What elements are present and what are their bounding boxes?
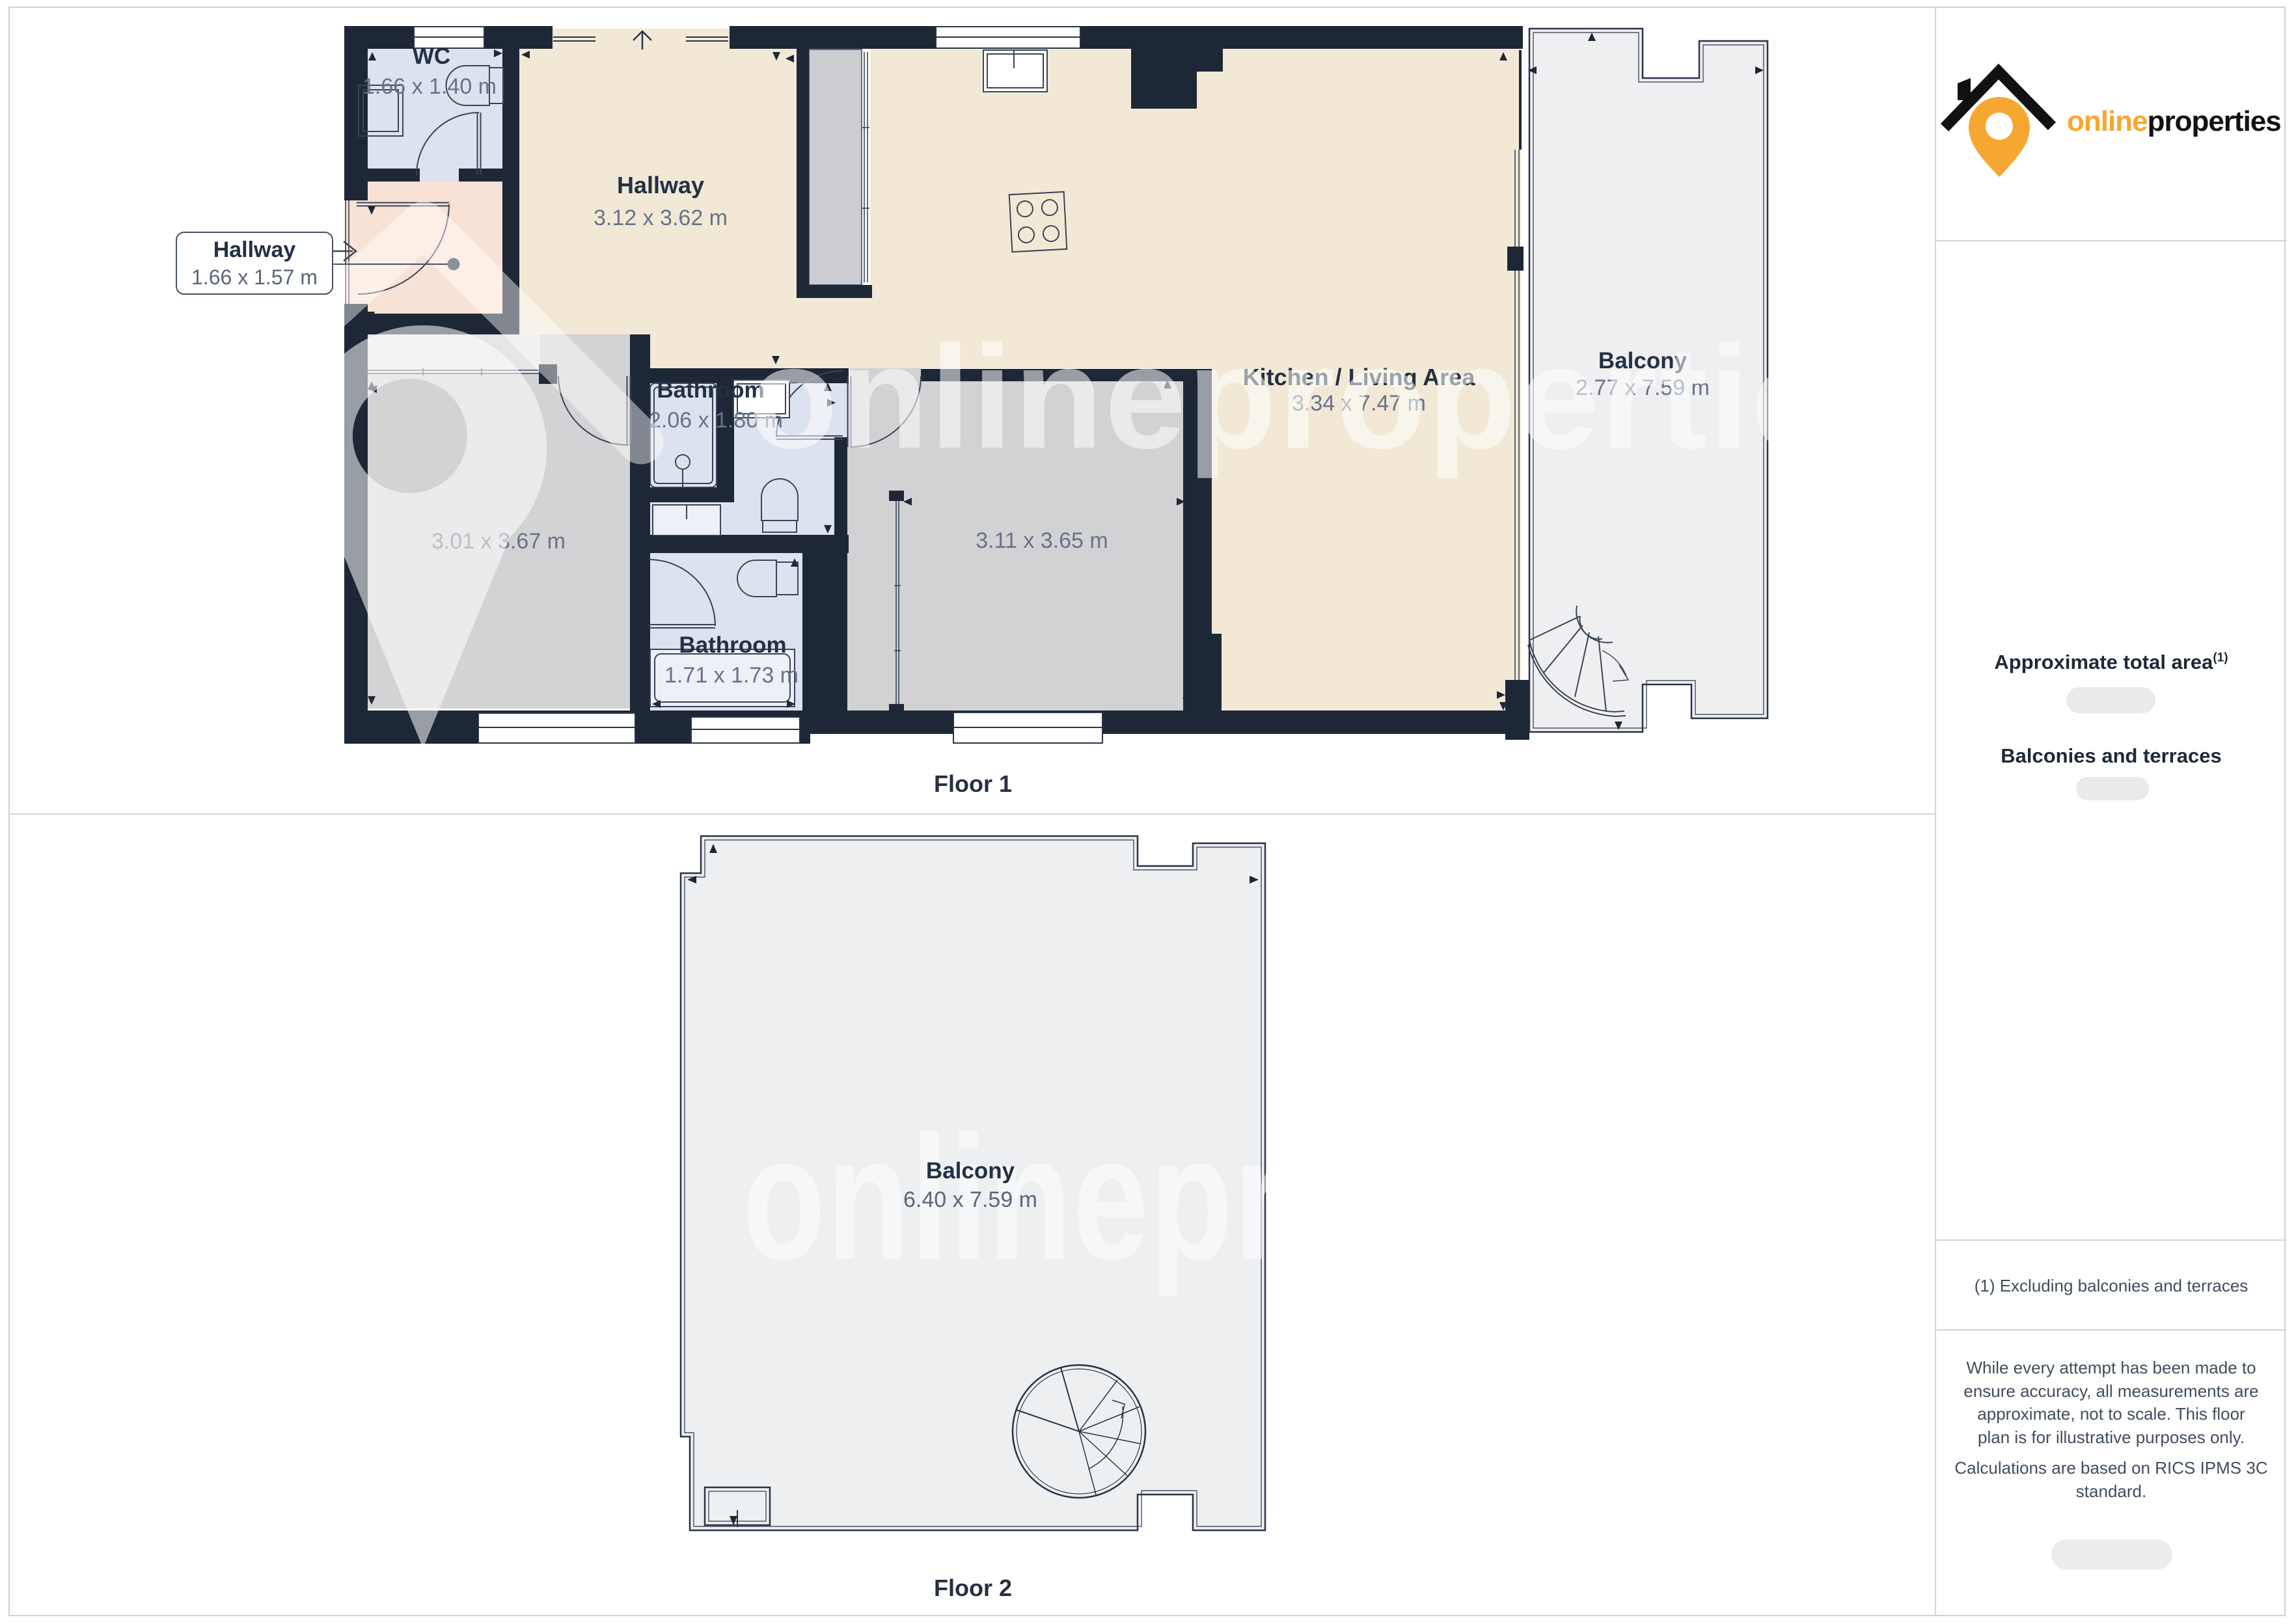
svg-text:onlineproperties: onlineproperties bbox=[2067, 105, 2281, 137]
svg-text:WC: WC bbox=[413, 44, 450, 69]
svg-text:Bathroom: Bathroom bbox=[679, 632, 786, 658]
svg-text:Hallway: Hallway bbox=[617, 172, 704, 198]
svg-text:6.40 x 7.59 m: 6.40 x 7.59 m bbox=[903, 1187, 1037, 1212]
svg-text:onlineproperties: onlineproperties bbox=[748, 315, 1917, 479]
svg-text:1.71 x 1.73 m: 1.71 x 1.73 m bbox=[664, 663, 799, 688]
svg-text:1.66 x 1.57 m: 1.66 x 1.57 m bbox=[191, 265, 318, 289]
svg-text:1.66 x 1.40 m: 1.66 x 1.40 m bbox=[362, 74, 497, 99]
svg-text:Hallway: Hallway bbox=[213, 237, 296, 262]
svg-text:3.11 x 3.65 m: 3.11 x 3.65 m bbox=[976, 528, 1108, 553]
svg-text:Balcony: Balcony bbox=[926, 1158, 1015, 1184]
svg-text:3.12 x 3.62 m: 3.12 x 3.62 m bbox=[594, 206, 728, 230]
